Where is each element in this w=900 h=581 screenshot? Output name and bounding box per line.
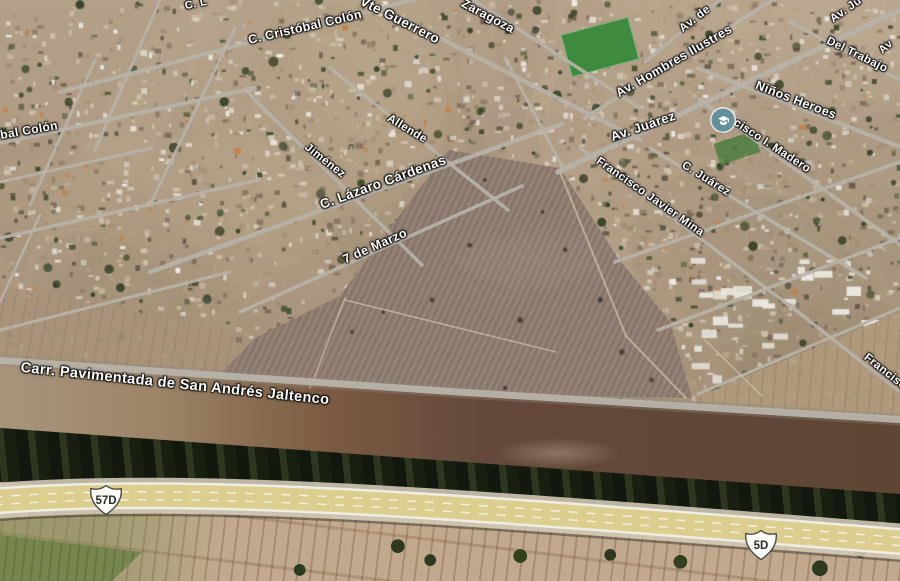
satellite-imagery-texture [0,0,900,581]
school-poi-graduation-cap-icon[interactable] [712,109,735,132]
graduation-cap-icon [716,113,730,127]
satellite-map-viewport[interactable]: C. LC. Cristóbal ColónVte GuerreroZarago… [0,0,900,581]
